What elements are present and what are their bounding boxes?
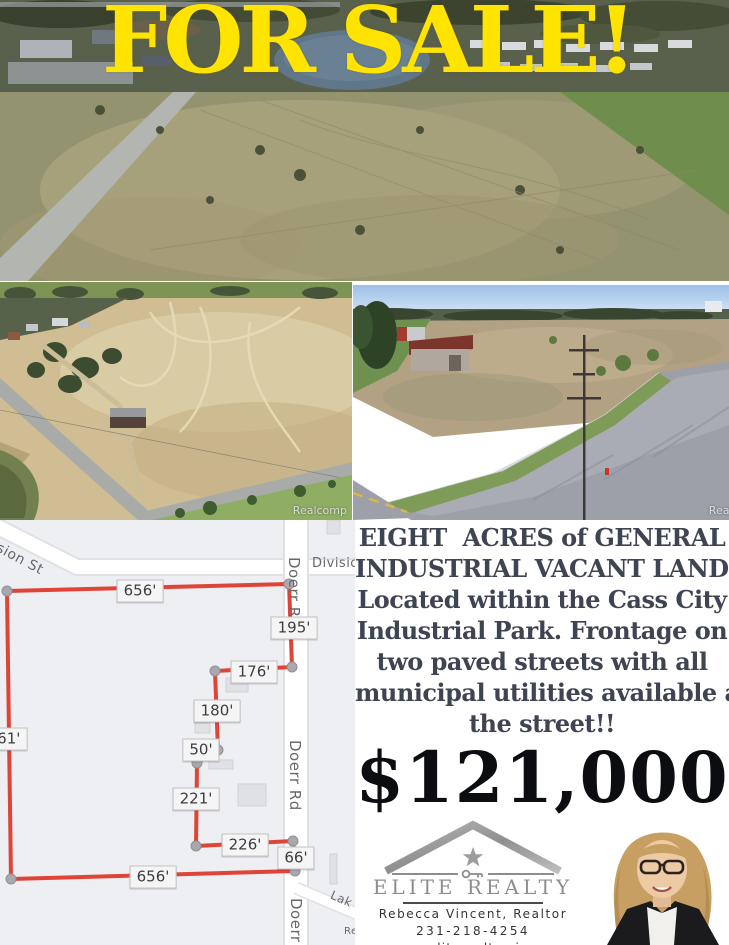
flyer-page: FOR SALE! xyxy=(0,0,729,945)
dimension-label: 180' xyxy=(194,700,241,723)
description-line: Located within the Cass City xyxy=(355,584,729,615)
elite-realty-logo xyxy=(378,817,568,879)
street-label: Doerr Rd xyxy=(286,740,304,811)
watermark: Realcomp xyxy=(709,504,729,517)
brand-divider xyxy=(403,902,543,904)
realtor-portrait xyxy=(595,815,729,945)
left-aerial-photo: Realcomp xyxy=(0,282,352,520)
brand-block: ELITE REALTY Rebecca Vincent, Realtor 23… xyxy=(357,817,589,945)
phone-number: 231-218-4254 xyxy=(357,924,589,938)
house xyxy=(80,322,90,328)
description-line: two paved streets with all xyxy=(355,646,729,677)
building xyxy=(20,40,72,58)
description-line: Industrial Park. Frontage on xyxy=(355,615,729,646)
house xyxy=(8,332,20,340)
left-aerial-photo-art xyxy=(0,282,352,520)
for-sale-headline: FOR SALE! xyxy=(102,0,633,94)
description-line: EIGHT ACRES of GENERAL xyxy=(355,522,729,553)
description-line: INDUSTRIAL VACANT LAND! xyxy=(355,553,729,584)
description: EIGHT ACRES of GENERALINDUSTRIAL VACANT … xyxy=(355,520,729,739)
street-label: Doerr R xyxy=(285,557,303,618)
street-label: Divisio xyxy=(312,556,355,571)
dimension-label: 221' xyxy=(173,788,220,811)
dimension-label: 176' xyxy=(231,661,278,684)
website: www.eliterealtymi.com xyxy=(357,941,589,945)
top-aerial-photo: FOR SALE! xyxy=(0,0,729,281)
barn-door xyxy=(449,355,461,371)
white-building xyxy=(705,301,722,312)
house xyxy=(26,324,38,331)
dimension-label: 226' xyxy=(222,834,269,857)
right-aerial-photo: Realcomp xyxy=(353,285,729,520)
house xyxy=(52,318,68,326)
price: $121,000 xyxy=(355,740,729,816)
dimension-label: 661' xyxy=(0,728,27,751)
dimension-label: 66' xyxy=(277,847,314,870)
agent-name: Rebecca Vincent, Realtor xyxy=(357,907,589,921)
street-label: Doerr xyxy=(287,898,305,943)
description-line: municipal utilities available at xyxy=(355,677,729,708)
dimension-label: 50' xyxy=(182,739,219,762)
hydrant xyxy=(605,468,609,475)
right-aerial-photo-art xyxy=(353,285,729,520)
dimension-label: 656' xyxy=(117,580,164,603)
barn-roof xyxy=(110,408,146,417)
utility-pole xyxy=(583,335,586,520)
top-grass-strip xyxy=(0,282,352,298)
info-panel: EIGHT ACRES of GENERALINDUSTRIAL VACANT … xyxy=(355,520,729,945)
description-line: the street!! xyxy=(355,708,729,739)
star-icon xyxy=(463,847,483,866)
watermark: Realcomp xyxy=(293,504,347,517)
brand-name: ELITE REALTY xyxy=(357,875,589,899)
plat-map: sion StDivisioDoerr RDoerr RdDoerrLakRe … xyxy=(0,520,355,945)
dimension-label: 656' xyxy=(130,866,177,889)
street-label: Re xyxy=(344,926,355,937)
dimension-label: 195' xyxy=(271,617,318,640)
